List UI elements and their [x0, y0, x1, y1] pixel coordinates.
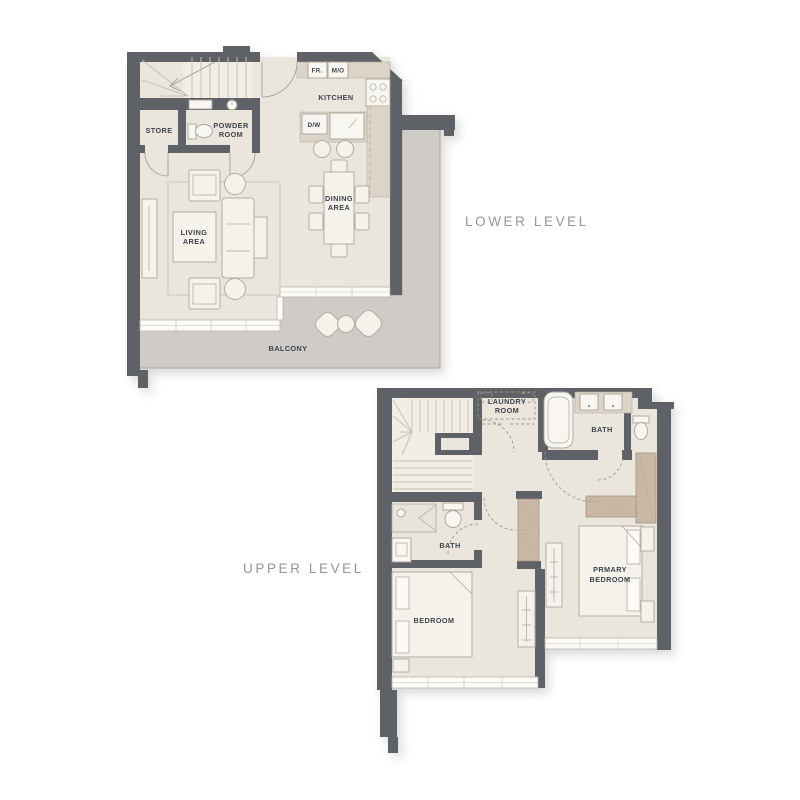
stove: [366, 79, 390, 106]
sofa: [222, 198, 254, 278]
dishwasher-label: D/W: [308, 122, 321, 129]
bar-stool: [337, 141, 354, 158]
side-table: [225, 174, 246, 195]
toilet-bowl: [445, 511, 461, 528]
bar-stool: [314, 141, 331, 158]
primary-bedroom-label-line2: BEDROOM: [590, 575, 631, 584]
fridge-label: FR.: [312, 68, 323, 75]
laundry-room-label-line2: ROOM: [495, 406, 519, 415]
pillow: [396, 621, 409, 653]
dining-chair: [355, 213, 369, 230]
tv-console: [142, 199, 157, 278]
window-connector: [277, 297, 283, 320]
balcony-label: BALCONY: [269, 344, 308, 353]
upper-level-plan: LAUNDRY ROOM BATH BATH BEDROOM PRMARY BE…: [377, 388, 674, 753]
shower: [392, 504, 436, 532]
store-label: STORE: [145, 126, 172, 135]
dining-area-label-line1: DINING: [325, 194, 353, 203]
toilet-tank: [633, 416, 649, 423]
armchair: [189, 278, 220, 309]
ensuite-sink: [392, 538, 411, 562]
vanity-sink: [604, 394, 622, 410]
micro-oven-label: M/O: [332, 68, 345, 75]
floorplan-canvas: STORE POWDER ROOM KITCHEN FR. M/O D/W DI…: [0, 0, 800, 800]
ensuite-bath-label: BATH: [439, 541, 460, 550]
toilet-bowl: [635, 423, 648, 440]
dining-chair: [355, 186, 369, 203]
side-table: [225, 279, 246, 300]
living-area-label-line2: AREA: [183, 237, 206, 246]
kitchen-counter-right: [367, 106, 390, 197]
vanity-sink: [580, 394, 598, 410]
powder-toilet-icon: [188, 124, 213, 139]
sofa-console: [254, 217, 267, 258]
bedroom-label: BEDROOM: [414, 616, 455, 625]
balcony-table: [338, 316, 355, 333]
nightstand: [393, 659, 409, 672]
primary-wardrobe-side: [636, 453, 656, 523]
lower-stairs-floor: [183, 57, 252, 98]
primary-bedroom-label-line1: PRMARY: [593, 565, 627, 574]
powder-room-label-line2: ROOM: [219, 130, 243, 139]
nightstand: [641, 527, 654, 551]
lower-level-caption: LOWER LEVEL: [465, 214, 589, 229]
powder-room-label-line1: POWDER: [213, 121, 249, 130]
kitchen-label: KITCHEN: [318, 93, 353, 102]
living-area-label-line1: LIVING: [181, 228, 208, 237]
dining-chair: [331, 244, 347, 257]
dining-chair: [309, 213, 323, 230]
dining-area-label-line2: AREA: [328, 203, 351, 212]
dining-chair: [331, 160, 347, 173]
laundry-room-label-line1: LAUNDRY: [488, 397, 526, 406]
upper-level-caption: UPPER LEVEL: [243, 561, 364, 576]
lower-level-plan: STORE POWDER ROOM KITCHEN FR. M/O D/W DI…: [127, 46, 455, 388]
primary-wardrobe-front: [586, 496, 636, 517]
dining-chair: [309, 186, 323, 203]
shower-drain: [397, 509, 405, 517]
armchair: [189, 170, 220, 201]
nightstand: [641, 601, 654, 622]
pillow: [627, 530, 640, 564]
pillow: [396, 577, 409, 609]
floorplan-svg: STORE POWDER ROOM KITCHEN FR. M/O D/W DI…: [0, 0, 800, 800]
bath-label: BATH: [591, 425, 612, 434]
island-sink: [330, 113, 364, 139]
toilet-tank: [443, 503, 463, 510]
